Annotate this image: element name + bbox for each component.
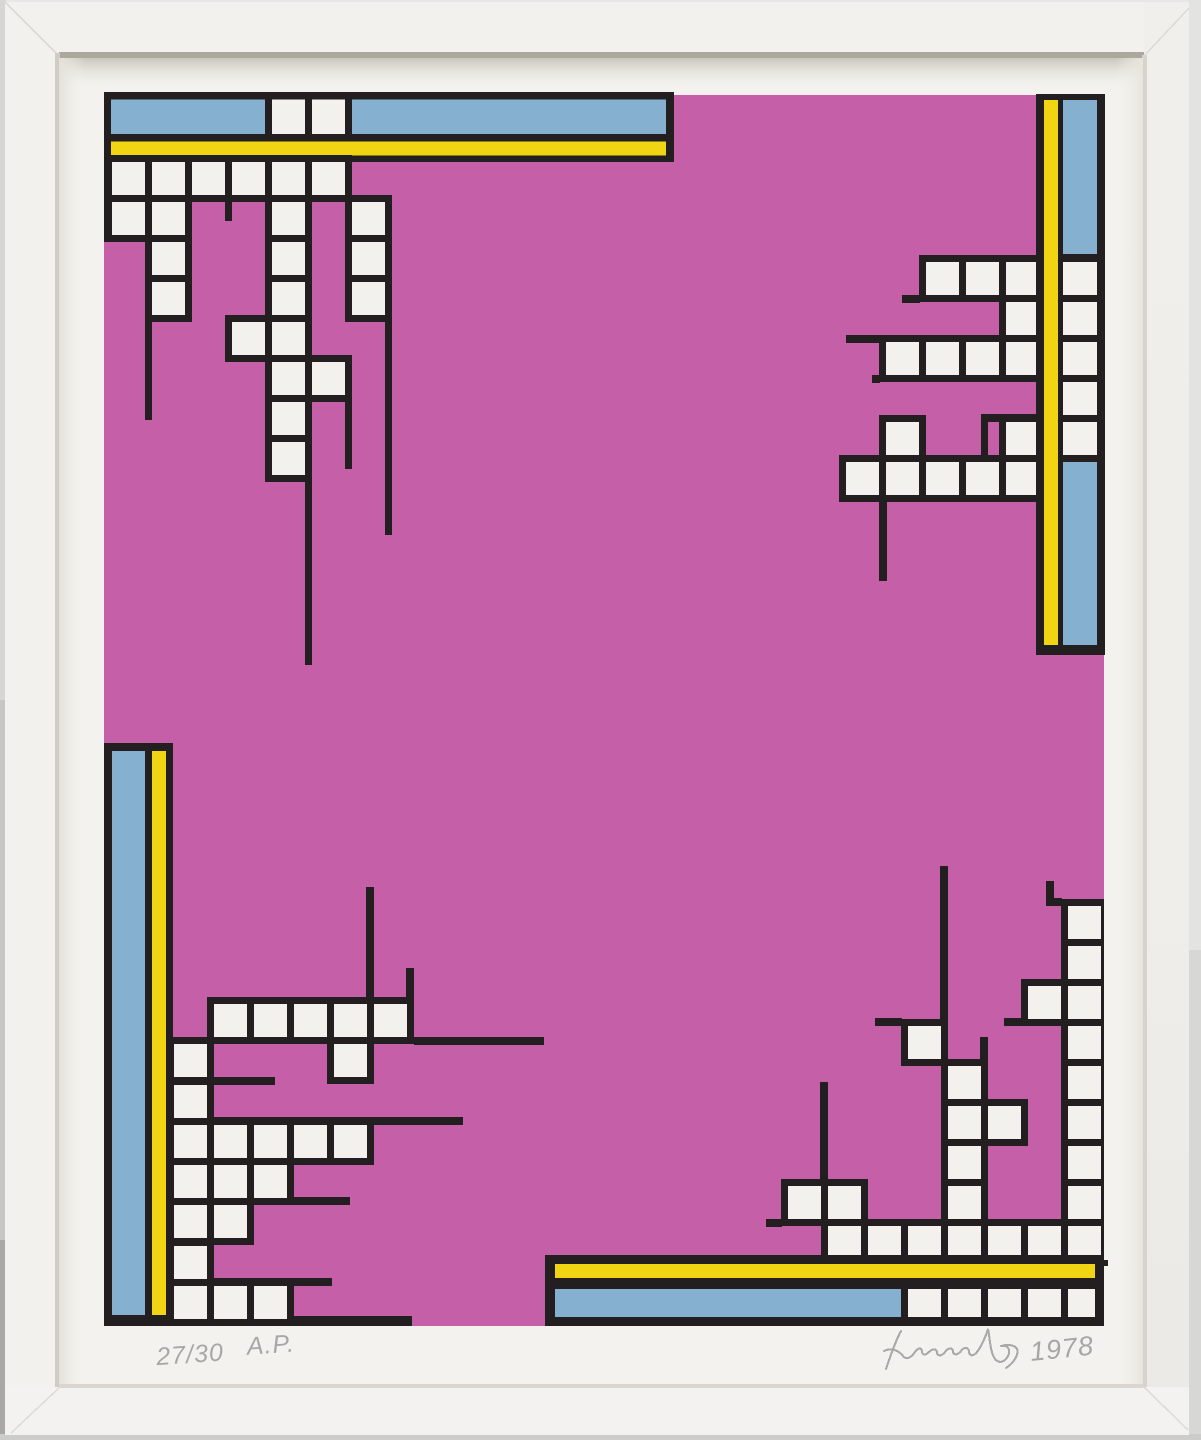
svg-text:A.P.: A.P.	[244, 1329, 296, 1360]
svg-text:27/30: 27/30	[154, 1338, 224, 1371]
